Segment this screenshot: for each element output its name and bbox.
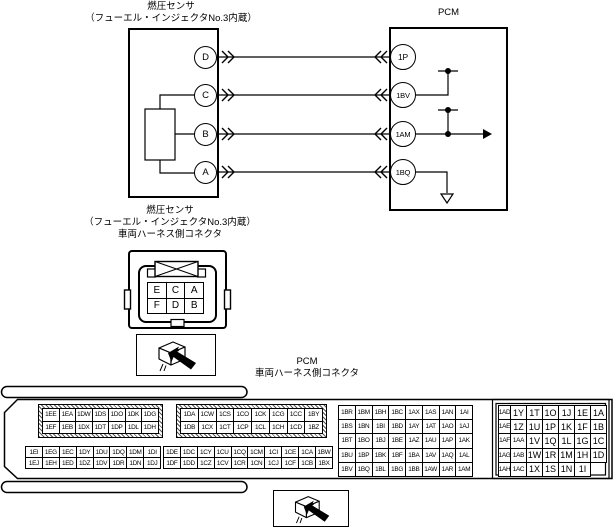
connector-arrow-icon — [285, 493, 337, 524]
pin-1BU: 1BU — [338, 448, 356, 463]
pin-1EJ: 1EJ — [25, 457, 43, 469]
pin-1CF: 1CF — [281, 457, 299, 469]
pin-1DW: 1DW — [75, 408, 93, 422]
pin-1C: 1C — [590, 433, 607, 448]
pin-B: B — [184, 298, 204, 315]
pin-1DF: 1DF — [163, 457, 181, 469]
pin-block-right: 1AD1Y1T1O1J1E1A1AE1Z1U1P1K1F1B1AF1AA1V1Q… — [498, 405, 607, 477]
pin-1AJ: 1AJ — [455, 419, 473, 434]
pin-1AT: 1AT — [422, 419, 440, 434]
sensor-terminal-c: C — [194, 84, 217, 107]
pin-1CP: 1CP — [233, 421, 252, 435]
pin-1BK: 1BK — [372, 448, 390, 463]
pin-1CZ: 1CZ — [197, 457, 215, 469]
pin-1CX: 1CX — [198, 421, 217, 435]
pin-1BP: 1BP — [355, 448, 373, 463]
pin-1BY: 1BY — [304, 408, 323, 422]
pcm-terminal-1bq: 1BQ — [390, 159, 416, 185]
pin-1BX: 1BX — [315, 457, 333, 469]
pcm-terminal-1am: 1AM — [390, 121, 416, 147]
pin-1S: 1S — [542, 462, 559, 477]
pcm-terminal-1bv: 1BV — [390, 82, 416, 108]
harness-pin-grid: E C A F D B — [147, 282, 204, 314]
pin-1BG: 1BG — [388, 462, 406, 477]
trace-1bv — [416, 71, 448, 95]
pin-1ED: 1ED — [59, 457, 77, 469]
wires — [217, 57, 391, 172]
pin-1P: 1P — [542, 419, 559, 434]
pin-F: F — [147, 298, 167, 315]
pin-1EF: 1EF — [42, 421, 60, 435]
pin-1CO: 1CO — [233, 408, 252, 422]
pin-1DT: 1DT — [92, 421, 110, 435]
trace-1bq — [416, 172, 447, 193]
pin-1CR: 1CR — [231, 457, 249, 469]
wiring-diagram-page: { "sensor": { "title_line1": "燃圧センサ", "t… — [0, 0, 616, 528]
upper-rail — [2, 387, 248, 398]
pin-1CB: 1CB — [298, 457, 316, 469]
view-direction-box — [136, 334, 216, 376]
signal-arrow-icon — [483, 129, 492, 139]
latch-icon — [155, 262, 198, 277]
pin-1U: 1U — [526, 419, 543, 434]
pin-1DJ: 1DJ — [143, 457, 161, 469]
pin-1AR: 1AR — [439, 462, 457, 477]
pin-1CL: 1CL — [251, 421, 270, 435]
pin-1J: 1J — [558, 405, 575, 420]
pin-1BS: 1BS — [338, 419, 356, 434]
pin-1CW: 1CW — [198, 408, 217, 422]
pin-1BA: 1BA — [405, 448, 423, 463]
ground-icon — [441, 194, 453, 203]
pin-1BO: 1BO — [355, 433, 373, 448]
pin-1CH: 1CH — [269, 421, 288, 435]
pin-1AC: 1AC — [510, 462, 527, 477]
pin-1X: 1X — [526, 462, 543, 477]
pin-1DX: 1DX — [75, 421, 93, 435]
pin-1DR: 1DR — [109, 457, 127, 469]
pin-1CT: 1CT — [216, 421, 235, 435]
pin-1BQ: 1BQ — [355, 462, 373, 477]
pin-1DN: 1DN — [126, 457, 144, 469]
pin-1L: 1L — [558, 433, 575, 448]
pin-1AB: 1AB — [510, 448, 527, 463]
pin-1DO: 1DO — [108, 408, 126, 422]
pin-1CS: 1CS — [216, 408, 235, 422]
pin-1EA: 1EA — [59, 408, 77, 422]
pin-1BM: 1BM — [355, 405, 373, 420]
pin-1AZ: 1AZ — [405, 433, 423, 448]
pin-1G: 1G — [574, 433, 591, 448]
pin-C: C — [166, 282, 186, 299]
pin-1AW: 1AW — [422, 462, 440, 477]
pin-1AN: 1AN — [439, 405, 457, 420]
pin-block-main: 1BR1BM1BH1BC1AX1AS1AN1AI1BS1BN1BI1BD1AY1… — [338, 405, 473, 477]
pin-1N: 1N — [558, 462, 575, 477]
view-direction-box — [273, 490, 349, 527]
pin-1DS: 1DS — [92, 408, 110, 422]
pin-1DV: 1DV — [93, 457, 111, 469]
pin-1DA: 1DA — [180, 408, 199, 422]
pin-1AY: 1AY — [405, 419, 423, 434]
pin-1BE: 1BE — [388, 433, 406, 448]
pin-1Z: 1Z — [510, 419, 527, 434]
bottom-notch — [171, 320, 184, 327]
pin-1DZ: 1DZ — [76, 457, 94, 469]
pin-1Y: 1Y — [510, 405, 527, 420]
pin-1DD: 1DD — [180, 457, 198, 469]
pin-1CV: 1CV — [214, 457, 232, 469]
pin-1EB: 1EB — [59, 421, 77, 435]
pin-block-hatched-left: 1EE1EA1DW1DS1DO1DK1DG1EF1EB1DX1DT1DP1DL1… — [38, 404, 163, 438]
pin-1AS: 1AS — [422, 405, 440, 420]
sensor-terminal-d: D — [194, 46, 217, 69]
pin-1B: 1B — [590, 419, 607, 434]
pin-1EH: 1EH — [42, 457, 60, 469]
pin-1CG: 1CG — [269, 408, 288, 422]
pin-1BZ: 1BZ — [304, 421, 323, 435]
pin-1BV: 1BV — [338, 462, 356, 477]
lower-rail — [2, 482, 248, 493]
pin-block-lower-right: 1DE1DC1CY1CU1CQ1CM1CI1CE1CA1BW1DF1DD1CZ1… — [163, 446, 333, 469]
pin-1BI: 1BI — [372, 419, 390, 434]
pin-1BC: 1BC — [388, 405, 406, 420]
pin-1R: 1R — [542, 448, 559, 463]
pin-1EE: 1EE — [42, 408, 60, 422]
sensor-terminal-a: A — [194, 161, 217, 184]
pin-1H: 1H — [574, 448, 591, 463]
sensor-element — [145, 95, 195, 173]
pin-1BN: 1BN — [355, 419, 373, 434]
pin-1BB: 1BB — [405, 462, 423, 477]
pin-block-hatched-right: 1DA1CW1CS1CO1CK1CG1CC1BY1DB1CX1CT1CP1CL1… — [176, 404, 327, 438]
pin-1BT: 1BT — [338, 433, 356, 448]
pin-E: E — [147, 282, 167, 299]
pin-1CK: 1CK — [251, 408, 270, 422]
pin-1I: 1I — [574, 462, 591, 477]
pin-1AQ: 1AQ — [439, 448, 457, 463]
pin-1BJ: 1BJ — [372, 433, 390, 448]
pin-1DH: 1DH — [141, 421, 159, 435]
pin-1DB: 1DB — [180, 421, 199, 435]
pin-1DL: 1DL — [125, 421, 143, 435]
pin-1AV: 1AV — [422, 448, 440, 463]
pin-1AA: 1AA — [510, 433, 527, 448]
sensor-terminal-b: B — [194, 123, 217, 146]
pin-1BH: 1BH — [372, 405, 390, 420]
pin-1O: 1O — [542, 405, 559, 420]
pin-1DG: 1DG — [141, 408, 159, 422]
connector-arrow-icon — [148, 338, 204, 372]
pin-1W: 1W — [526, 448, 543, 463]
pin-1AK: 1AK — [455, 433, 473, 448]
pin-1CD: 1CD — [287, 421, 306, 435]
pin-1M: 1M — [558, 448, 575, 463]
pin-1CJ: 1CJ — [264, 457, 282, 469]
pin-1DK: 1DK — [125, 408, 143, 422]
pin-1AO: 1AO — [439, 419, 457, 434]
pin-1CC: 1CC — [287, 408, 306, 422]
pin-1BR: 1BR — [338, 405, 356, 420]
pin-1A: 1A — [590, 405, 607, 420]
pin-1AL: 1AL — [455, 448, 473, 463]
pin-1K: 1K — [558, 419, 575, 434]
connector-chevron-icons — [222, 51, 387, 178]
pin-1V: 1V — [526, 433, 543, 448]
pin-1F: 1F — [574, 419, 591, 434]
pin-1Q: 1Q — [542, 433, 559, 448]
pin-1CN: 1CN — [247, 457, 265, 469]
pin-1AX: 1AX — [405, 405, 423, 420]
pin-1AU: 1AU — [422, 433, 440, 448]
pin-1AM: 1AM — [455, 462, 473, 477]
pcm-terminal-1p: 1P — [390, 44, 416, 70]
pin-1DP: 1DP — [108, 421, 126, 435]
pin-1BL: 1BL — [372, 462, 390, 477]
pin-A: A — [184, 282, 204, 299]
pin-1T: 1T — [526, 405, 543, 420]
pin-1BF: 1BF — [388, 448, 406, 463]
pin-block-lower-left: 1EI1EG1EC1DY1DU1DQ1DM1DI1EJ1EH1ED1DZ1DV1… — [25, 446, 161, 469]
pin-1AP: 1AP — [439, 433, 457, 448]
pin-D: D — [166, 298, 186, 315]
pin-1AI: 1AI — [455, 405, 473, 420]
pin-1BD: 1BD — [388, 419, 406, 434]
pin-1E: 1E — [574, 405, 591, 420]
pin-1D: 1D — [590, 448, 607, 463]
